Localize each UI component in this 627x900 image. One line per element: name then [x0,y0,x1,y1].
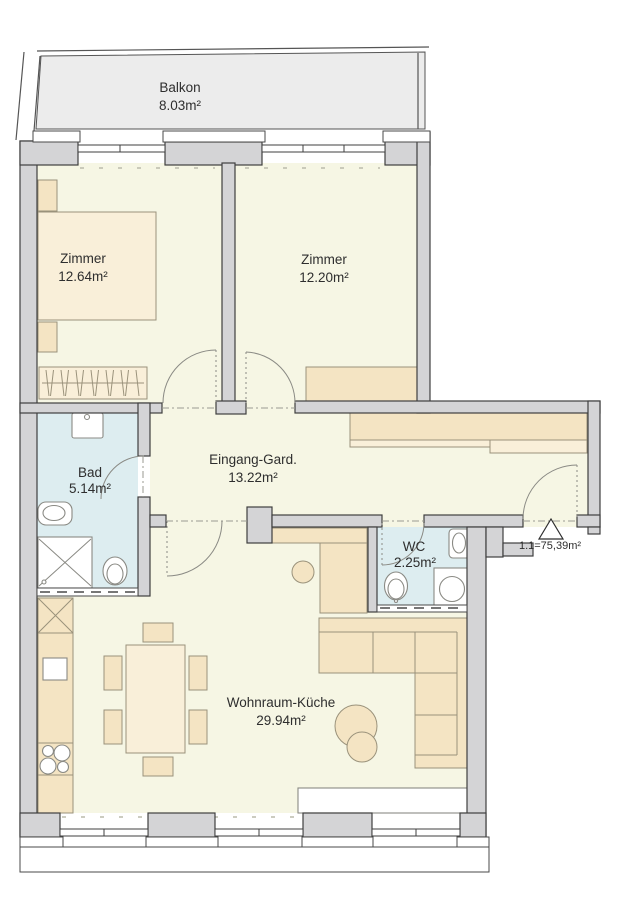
nightstand [38,322,57,352]
chair [104,656,122,690]
stool [292,561,314,583]
terrace-strip [20,847,489,872]
floor-plan: Balkon 8.03m² Zimmer 12.64m² Zimmer 12.2… [0,0,627,900]
side-table [347,732,377,762]
kitchen-sink [43,658,67,680]
kitchen-counter [38,633,73,743]
balcony-threshold [33,131,80,142]
balcony [16,47,429,140]
hall-wardrobe [350,412,587,440]
chair [189,656,207,690]
label-eingang: Eingang-Gard. [209,452,297,467]
wall-right-upper [417,132,430,413]
label-zimmer-1: Zimmer [60,251,106,266]
dining-table [126,645,185,753]
chair [143,757,173,776]
bed [38,212,156,320]
kitchen-island [272,528,367,543]
area-eingang: 13.22m² [228,470,278,485]
area-wohnraum: 29.94m² [256,713,306,728]
sideboard [298,788,470,813]
wall-hall-right [588,401,600,527]
balcony-threshold [163,131,265,142]
label-zimmer-2: Zimmer [301,252,347,267]
chair [189,710,207,744]
window-north-1 [78,145,165,152]
area-bad: 5.14m² [69,481,112,496]
area-balkon: 8.03m² [159,98,202,113]
nightstand [38,180,57,211]
label-balkon: Balkon [159,80,200,95]
entrance-label: 1.1=75,39m² [519,540,581,552]
chair [143,623,173,642]
wall-left [20,141,37,837]
label-bad: Bad [78,465,102,480]
bedroom2-furniture [306,367,417,403]
window-north-2 [262,145,385,152]
wall-pillar [247,507,272,543]
balcony-threshold [383,131,430,142]
hall-furniture [350,412,587,453]
chair [104,710,122,744]
label-wc: WC [403,539,426,554]
bath-bottom-wall [37,588,138,596]
label-wohnraum: Wohnraum-Küche [227,695,336,710]
floor-plan-page: Balkon 8.03m² Zimmer 12.64m² Zimmer 12.2… [0,0,627,900]
wall-room-divider [222,163,235,403]
wall-right-lower [467,527,486,837]
area-zimmer-1: 12.64m² [58,269,108,284]
area-zimmer-2: 12.20m² [299,270,349,285]
area-wc: 2.25m² [394,555,437,570]
dresser [306,367,417,403]
